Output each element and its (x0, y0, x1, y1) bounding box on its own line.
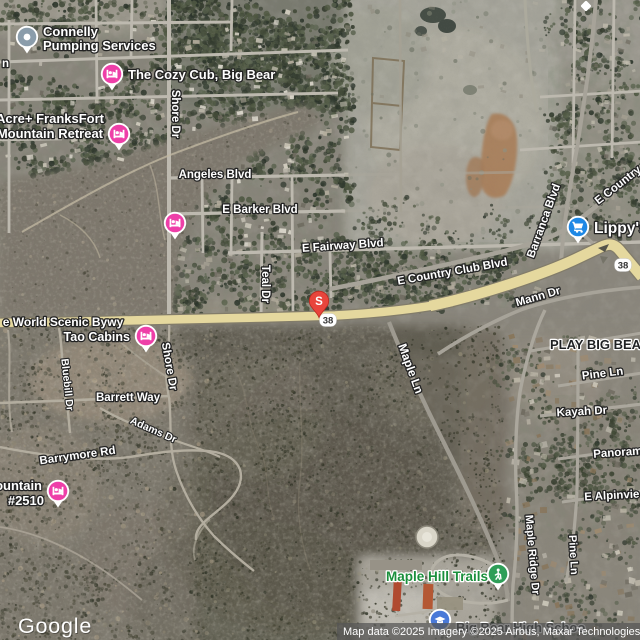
svg-text:Shore Dr: Shore Dr (169, 90, 181, 139)
svg-text:Acre+ FranksFort: Acre+ FranksFort (0, 111, 105, 126)
svg-text:Google: Google (18, 614, 92, 638)
svg-text:e World Scenic Bywy: e World Scenic Bywy (3, 315, 124, 329)
svg-text:Angeles Blvd: Angeles Blvd (179, 169, 252, 181)
svg-text:Mountain Retreat: Mountain Retreat (0, 126, 104, 141)
svg-text:#2510: #2510 (8, 493, 44, 508)
svg-text:PLAY BIG BEA: PLAY BIG BEA (550, 337, 640, 352)
svg-text:38: 38 (618, 260, 629, 271)
svg-text:Barrett Way: Barrett Way (96, 392, 161, 404)
svg-text:The Cozy Cub, Big Bear: The Cozy Cub, Big Bear (128, 67, 275, 82)
svg-text:n: n (2, 58, 9, 70)
svg-text:38: 38 (323, 315, 334, 326)
svg-text:Map data ©2025 Imagery ©2025 A: Map data ©2025 Imagery ©2025 Airbus, Max… (343, 626, 640, 638)
svg-text:Pine Ln: Pine Ln (566, 535, 580, 576)
svg-text:E Barker Blvd: E Barker Blvd (222, 204, 297, 216)
svg-text:Tao Cabins: Tao Cabins (64, 330, 130, 344)
svg-text:S: S (315, 296, 323, 308)
svg-text:Connelly: Connelly (43, 24, 99, 39)
svg-text:Pumping Services: Pumping Services (43, 38, 156, 53)
svg-text:Lippy's: Lippy's (594, 220, 640, 237)
svg-text:Teal Dr: Teal Dr (259, 265, 271, 304)
svg-text:Maple Hill Trails: Maple Hill Trails (386, 569, 488, 584)
svg-text:ountain: ountain (0, 478, 42, 493)
